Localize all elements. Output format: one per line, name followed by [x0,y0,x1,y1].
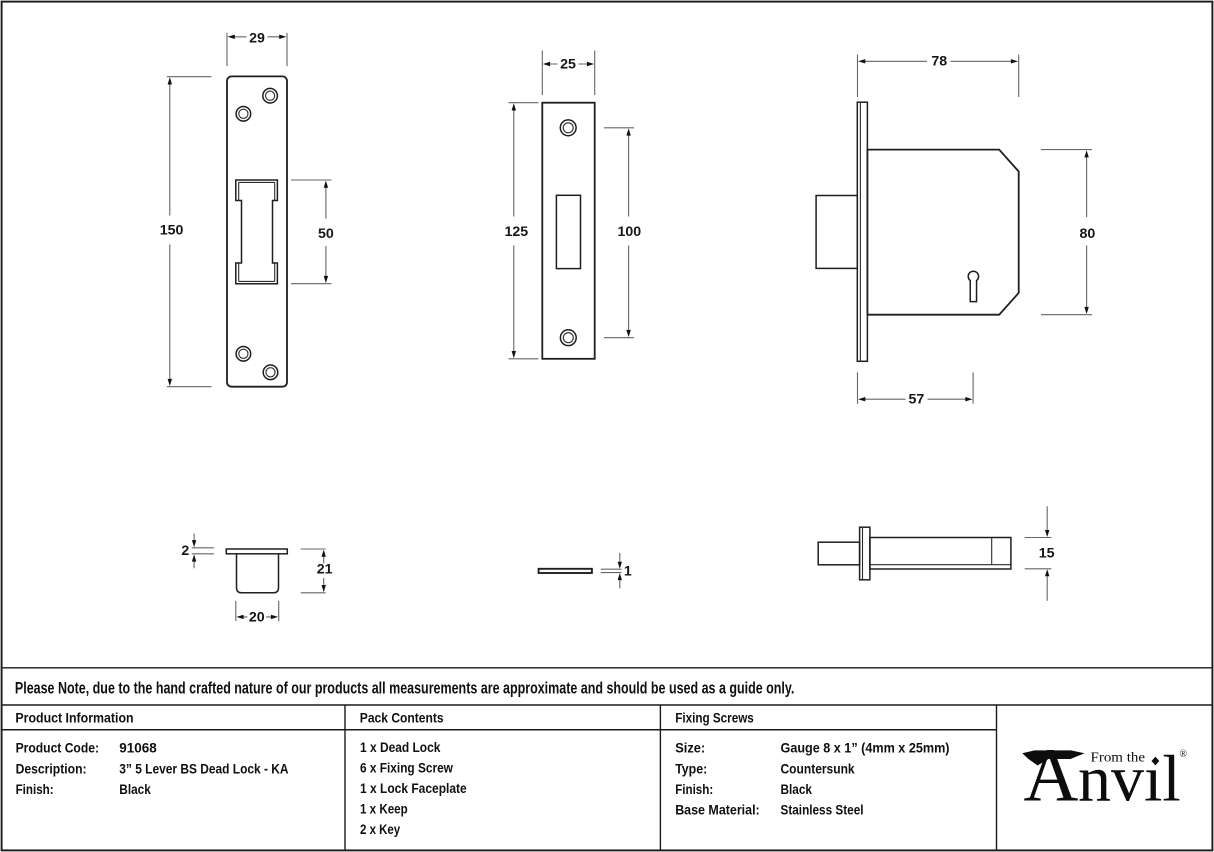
svg-text:Description:: Description: [16,761,87,776]
svg-text:Base Material:: Base Material: [675,802,760,817]
svg-text:Black: Black [119,782,151,797]
svg-text:15: 15 [1039,546,1055,562]
svg-text:Fixing Screws: Fixing Screws [675,710,754,726]
svg-text:Pack Contents: Pack Contents [360,710,444,726]
svg-text:50: 50 [318,226,334,242]
svg-text:25: 25 [560,57,576,73]
svg-text:1 x Keep: 1 x Keep [360,802,408,817]
svg-text:21: 21 [317,562,333,578]
svg-text:91068: 91068 [119,740,157,755]
svg-text:100: 100 [617,224,641,240]
svg-text:Product Information: Product Information [15,710,133,726]
svg-text:Stainless Steel: Stainless Steel [781,802,864,817]
svg-text:1 x Dead Lock: 1 x Dead Lock [360,740,441,755]
svg-text:Finish:: Finish: [16,782,54,797]
svg-text:A: A [1024,733,1079,817]
svg-text:2: 2 [181,543,189,559]
svg-text:Product Code:: Product Code: [16,740,99,755]
svg-text:57: 57 [909,392,925,408]
svg-text:20: 20 [249,609,265,625]
svg-text:Black: Black [781,782,813,797]
svg-text:125: 125 [504,224,528,240]
svg-text:Countersunk: Countersunk [781,761,856,776]
svg-text:80: 80 [1080,226,1096,242]
svg-text:2 x Key: 2 x Key [360,822,401,837]
svg-text:1 x Lock Faceplate: 1 x Lock Faceplate [360,781,467,796]
svg-text:Type:: Type: [675,761,707,776]
svg-text:Finish:: Finish: [675,782,713,797]
svg-text:1: 1 [624,564,632,580]
svg-text:®: ® [1180,749,1188,760]
svg-text:Please Note, due to the hand c: Please Note, due to the hand crafted nat… [15,678,795,697]
svg-text:150: 150 [160,223,184,239]
svg-text:3” 5 Lever BS Dead Lock - KA: 3” 5 Lever BS Dead Lock - KA [119,761,288,776]
svg-text:Gauge 8 x 1” (4mm x 25mm): Gauge 8 x 1” (4mm x 25mm) [781,740,950,755]
svg-text:78: 78 [931,54,947,70]
svg-text:Size:: Size: [675,740,705,755]
svg-text:6 x Fixing Screw: 6 x Fixing Screw [360,761,453,776]
svg-text:From the: From the [1091,749,1146,764]
svg-text:29: 29 [249,30,265,46]
